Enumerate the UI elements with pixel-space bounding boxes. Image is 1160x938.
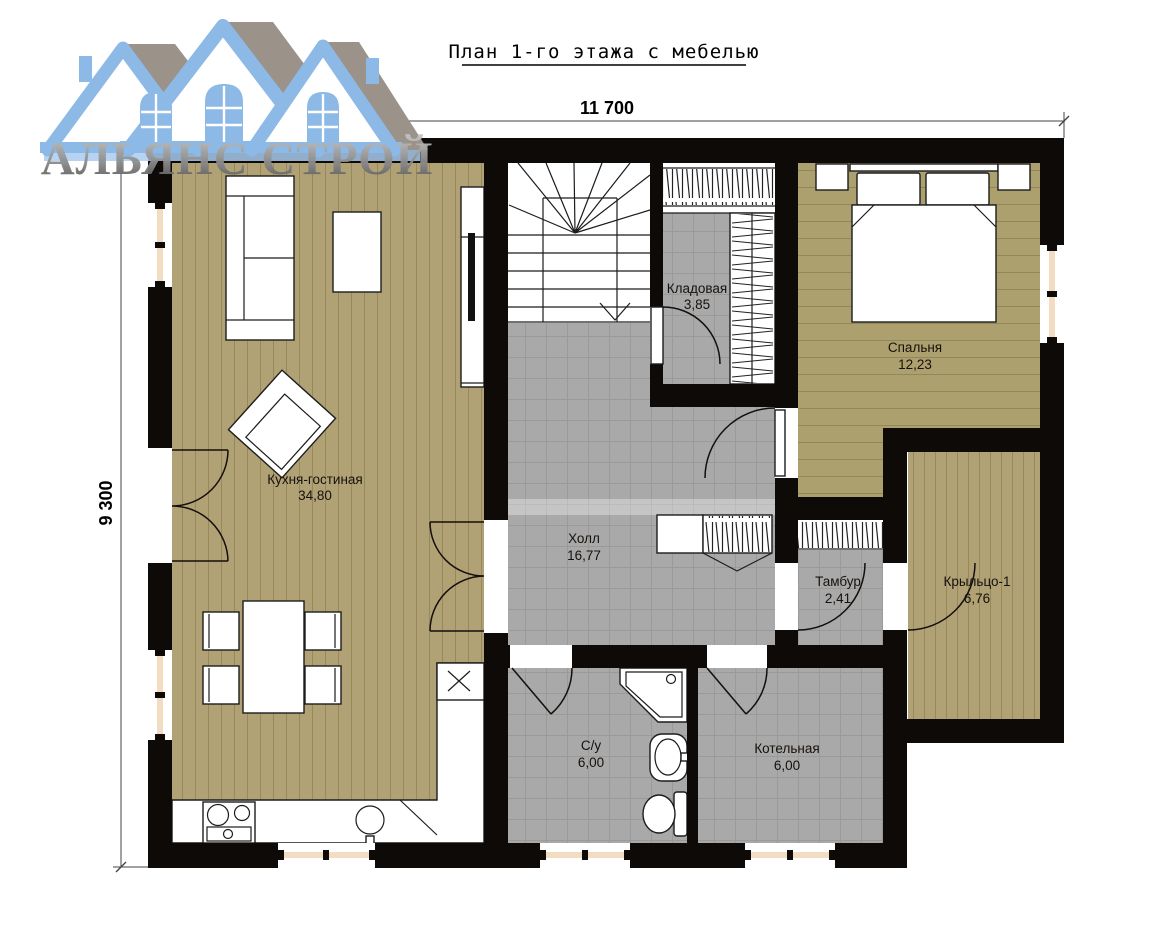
- window-left-upper: [148, 203, 172, 287]
- vestibule-rack: [798, 520, 883, 550]
- floor-plan-page: Кухня-гостиная 34,80 Кладовая 3,85 Спаль…: [0, 0, 1160, 938]
- label-boiler-area: 6,00: [774, 758, 800, 773]
- label-kitchen-living-name: Кухня-гостиная: [267, 472, 363, 487]
- label-bathroom-area: 6,00: [578, 755, 604, 770]
- nightstand: [816, 164, 848, 190]
- dining-table: [243, 601, 304, 713]
- label-vestibule-area: 2,41: [825, 591, 851, 606]
- tv-cabinet: [461, 187, 484, 387]
- porch-wall-top: [883, 428, 1064, 452]
- vestibule-left-wall: [775, 520, 798, 563]
- vestibule-right-wall: [883, 428, 907, 563]
- label-hall-area: 16,77: [567, 548, 601, 563]
- label-bedroom-area: 12,23: [898, 357, 932, 372]
- porch-wall-right: [1040, 452, 1064, 743]
- label-porch-area: 6,76: [964, 591, 990, 606]
- boiler-top-wall: [767, 645, 907, 668]
- bathroom-top-wall: [484, 645, 510, 668]
- fridge: [437, 663, 484, 700]
- bath-boiler-wall: [687, 668, 698, 843]
- label-boiler-name: Котельная: [754, 741, 819, 756]
- nightstand: [998, 164, 1030, 190]
- vestibule-hangers: [798, 521, 883, 548]
- drawing-title: План 1-го этажа с мебелью: [449, 41, 760, 63]
- staircase-floor: [508, 163, 650, 323]
- window-bottom-boiler: [745, 843, 835, 868]
- bedroom-left-wall: [775, 163, 798, 408]
- hall-light-band: [508, 499, 775, 515]
- coffee-table: [333, 212, 381, 292]
- bed-headboard: [850, 164, 998, 171]
- logo-company-name: АЛЬЯНС СТРОЙ: [41, 133, 434, 185]
- window-bottom-bathroom: [540, 843, 630, 868]
- label-bathroom-name: С/у: [581, 738, 602, 753]
- stove: [203, 802, 255, 843]
- label-storage-name: Кладовая: [667, 281, 727, 296]
- sofa: [226, 176, 294, 340]
- label-vestibule-name: Тамбур: [815, 574, 861, 589]
- logo-chimney: [79, 56, 92, 82]
- exterior-wall-left: [148, 563, 172, 650]
- window-bottom-living: [278, 843, 375, 868]
- label-storage-area: 3,85: [684, 297, 710, 312]
- company-logo: АЛЬЯНС СТРОЙ: [40, 22, 433, 185]
- tv: [468, 233, 475, 321]
- dim-height-value: 9 300: [96, 480, 116, 525]
- window-bedroom-right: [1040, 245, 1064, 343]
- exterior-wall-left: [148, 287, 172, 448]
- stairs-storage-wall: [650, 163, 663, 307]
- wardrobe-hangers: [704, 516, 771, 552]
- washbasin: [650, 734, 689, 781]
- pillow: [926, 173, 989, 205]
- storage-hanger-rack: [663, 169, 775, 205]
- bathroom-top-wall: [572, 645, 707, 668]
- bed-mattress: [852, 205, 996, 322]
- floor-plan-drawing: Кухня-гостиная 34,80 Кладовая 3,85 Спаль…: [0, 0, 1160, 938]
- vestibule-left-wall: [775, 630, 798, 645]
- toilet: [643, 792, 687, 836]
- pillow: [857, 173, 920, 205]
- wardrobe-cabinet: [657, 515, 703, 553]
- label-kitchen-living-area: 34,80: [298, 488, 332, 503]
- window-left-lower: [148, 650, 172, 740]
- label-bedroom-name: Спальня: [888, 340, 942, 355]
- dim-width-value: 11 700: [580, 98, 634, 118]
- label-porch-name: Крыльцо-1: [943, 574, 1010, 589]
- bedroom-bottom-wall: [775, 497, 883, 520]
- porch-wall-bottom: [907, 719, 1064, 743]
- shelf-coils: [731, 214, 774, 383]
- living-hall-wall: [484, 163, 508, 520]
- logo-chimney: [366, 58, 379, 84]
- exterior-wall-right: [1040, 138, 1064, 245]
- storage-shelves: [730, 213, 775, 384]
- label-hall-name: Холл: [568, 531, 600, 546]
- boiler-right-wall: [883, 668, 907, 843]
